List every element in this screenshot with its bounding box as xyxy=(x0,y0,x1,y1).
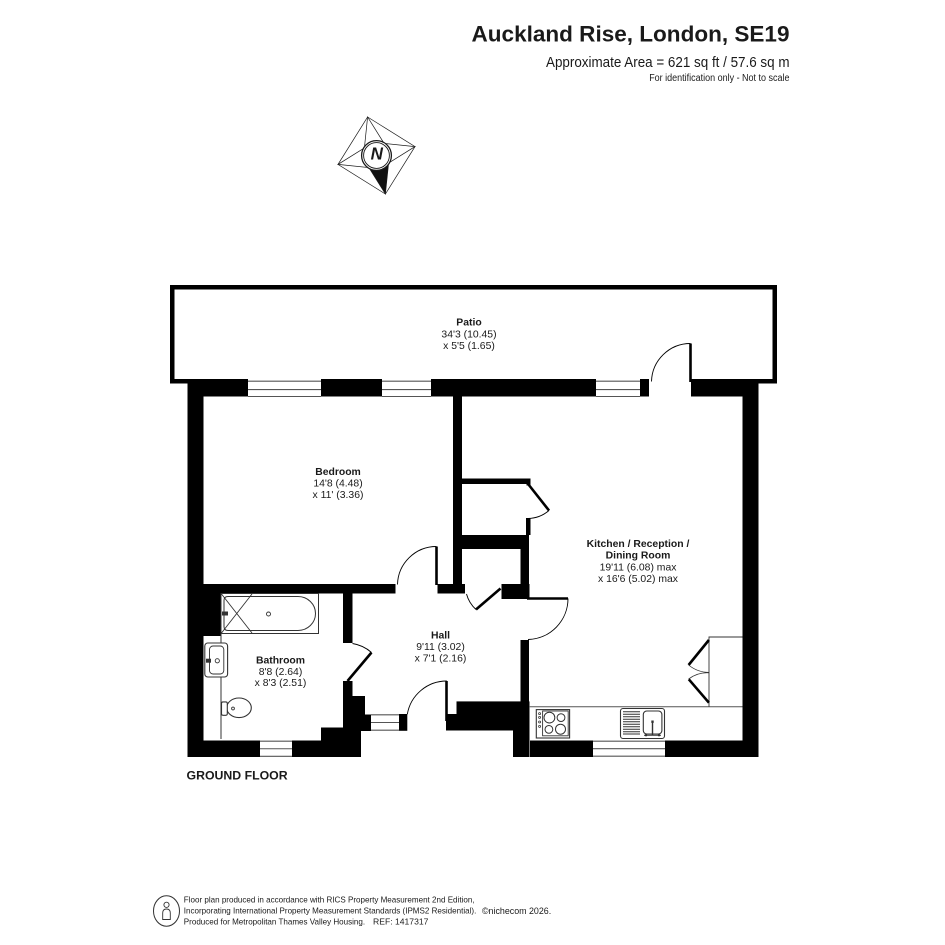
svg-text:Patio: Patio xyxy=(456,317,481,328)
svg-text:GROUND FLOOR: GROUND FLOOR xyxy=(187,768,288,782)
svg-text:x 16'6 (5.02) max: x 16'6 (5.02) max xyxy=(598,574,679,585)
svg-text:9'11 (3.02): 9'11 (3.02) xyxy=(416,642,465,653)
svg-text:N: N xyxy=(371,143,384,163)
svg-text:Dining Room: Dining Room xyxy=(606,551,671,562)
svg-text:REF: 1417317: REF: 1417317 xyxy=(373,917,429,927)
svg-text:Floor plan produced in accorda: Floor plan produced in accordance with R… xyxy=(184,895,475,904)
svg-text:Incorporating International Pr: Incorporating International Property Mea… xyxy=(184,907,477,916)
svg-text:Produced for Metropolitan Tham: Produced for Metropolitan Thames Valley … xyxy=(184,918,365,927)
svg-text:19'11 (6.08) max: 19'11 (6.08) max xyxy=(600,563,678,574)
svg-text:Kitchen / Reception /: Kitchen / Reception / xyxy=(587,539,690,550)
svg-text:©nichecom 2026.: ©nichecom 2026. xyxy=(482,906,551,916)
svg-text:x 11' (3.36): x 11' (3.36) xyxy=(313,490,364,501)
svg-text:Approximate Area = 621 sq ft /: Approximate Area = 621 sq ft / 57.6 sq m xyxy=(546,54,790,71)
svg-text:Bathroom: Bathroom xyxy=(256,655,305,666)
svg-text:Bedroom: Bedroom xyxy=(315,467,361,478)
svg-text:Hall: Hall xyxy=(431,630,450,641)
svg-text:Auckland Rise, London, SE19: Auckland Rise, London, SE19 xyxy=(472,21,790,46)
svg-text:x 5'5 (1.65): x 5'5 (1.65) xyxy=(443,341,495,352)
svg-text:For identification only - Not: For identification only - Not to scale xyxy=(649,73,790,84)
svg-text:x 7'1 (2.16): x 7'1 (2.16) xyxy=(415,654,467,665)
svg-text:14'8 (4.48): 14'8 (4.48) xyxy=(313,479,362,490)
svg-text:x 8'3 (2.51): x 8'3 (2.51) xyxy=(255,678,307,689)
svg-text:8'8 (2.64): 8'8 (2.64) xyxy=(259,667,303,678)
svg-text:34'3 (10.45): 34'3 (10.45) xyxy=(441,329,496,340)
